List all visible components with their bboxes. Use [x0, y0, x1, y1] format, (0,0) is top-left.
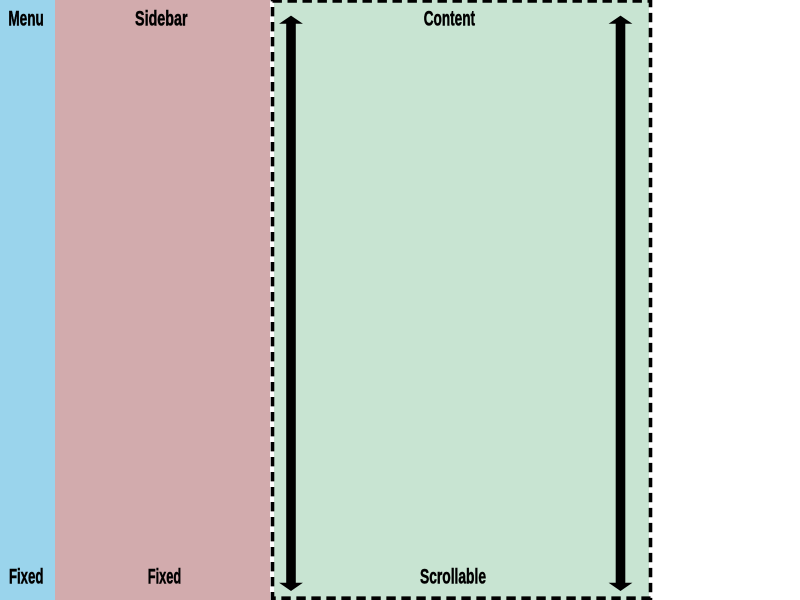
- svg-text:Scrollable: Scrollable: [420, 566, 486, 589]
- svg-text:Fixed: Fixed: [148, 566, 182, 589]
- svg-text:Sidebar: Sidebar: [135, 8, 188, 31]
- svg-text:Content: Content: [424, 8, 475, 31]
- svg-text:Menu: Menu: [8, 8, 43, 31]
- svg-text:Fixed: Fixed: [9, 566, 44, 589]
